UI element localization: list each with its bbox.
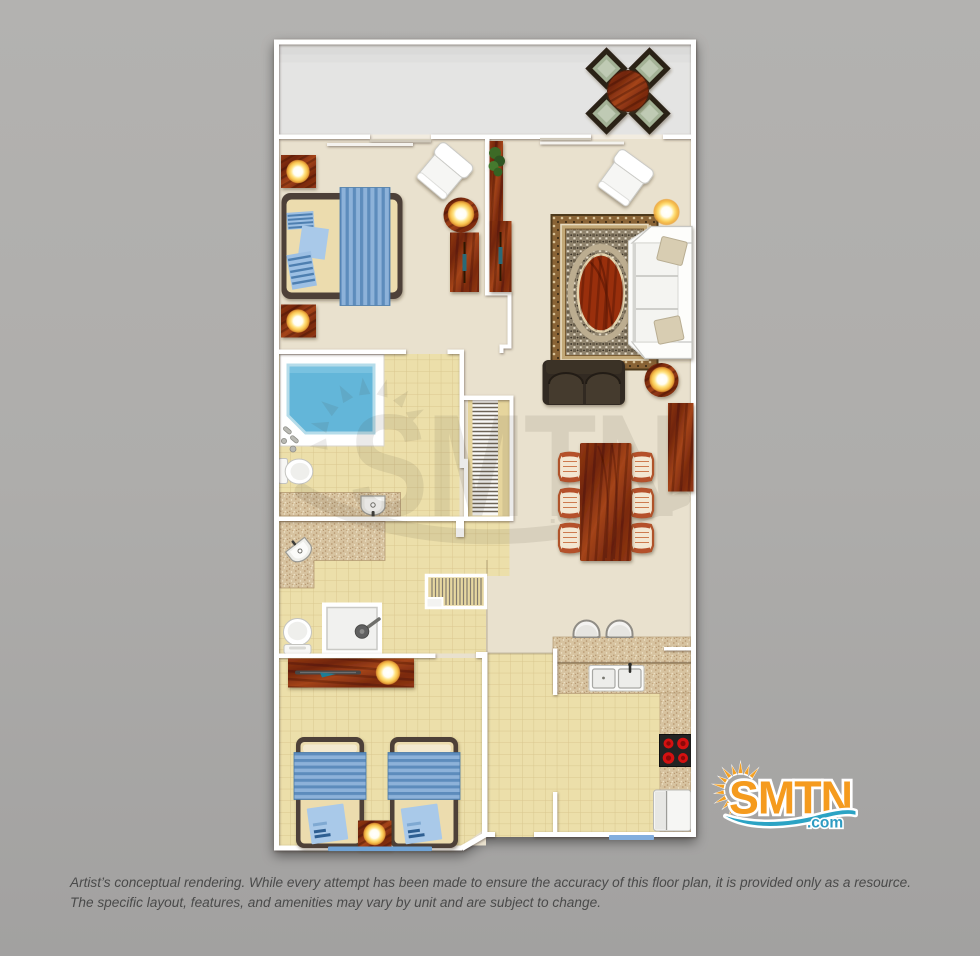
svg-text:.com: .com bbox=[807, 815, 843, 832]
svg-text:The specific layout, features,: The specific layout, features, and ameni… bbox=[70, 895, 601, 911]
svg-text:Artist’s conceptual rendering.: Artist’s conceptual rendering. While eve… bbox=[69, 875, 911, 891]
